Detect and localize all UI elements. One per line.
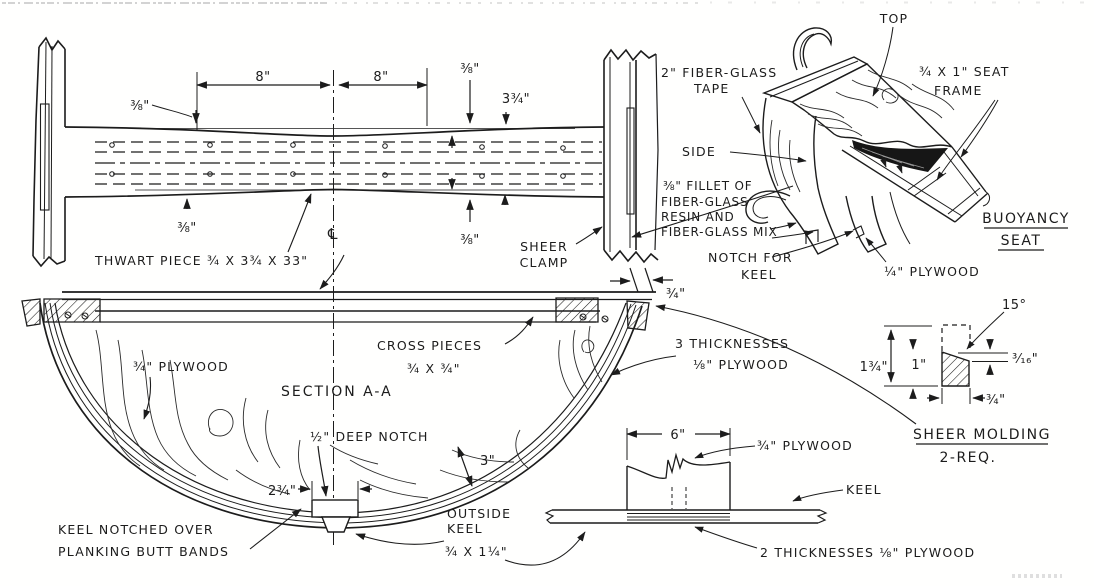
sheer-clamp-label-2: CLAMP <box>520 255 569 270</box>
dim-38-bottom-left: ⅜" <box>177 221 197 236</box>
dim-6: 6" <box>670 428 685 443</box>
plan-dimensions <box>152 68 506 545</box>
side-leader <box>730 152 806 161</box>
cross-pieces-label-1: CROSS PIECES <box>377 338 482 353</box>
thwart-leader-up <box>288 194 311 252</box>
thwart-piece-plan <box>65 127 604 197</box>
thwart-piece-label: THWART PIECE ¾ X 3¾ X 33" <box>94 253 308 268</box>
dim-34-gap-group <box>610 268 673 292</box>
deep-notch-label: ½" DEEP NOTCH <box>310 429 429 444</box>
dim-3-16: ³⁄₁₆" <box>1012 352 1038 367</box>
hull-wood-grain <box>96 326 602 498</box>
keel-thicknesses-label: 2 THICKNESSES ⅛" PLYWOOD <box>760 545 975 560</box>
dim-8-right: 8" <box>373 70 388 85</box>
thicknesses-label-1: 3 THICKNESSES <box>675 336 789 351</box>
keel-label: KEEL <box>846 482 882 497</box>
plywood-34-label: ¾" PLYWOOD <box>133 359 229 374</box>
dim-34-gap: ¾" <box>666 287 686 302</box>
plan-sheer-clamp-post <box>604 50 658 262</box>
plan-left-hull-side <box>33 38 65 266</box>
screw-holes <box>110 143 566 179</box>
drawing-canvas: 8" 8" ⅜" ⅜" 3¾" ⅜" ⅜" ℄ THWART PIECE ¾ X… <box>0 0 1094 586</box>
dim-38-top-left: ⅜" <box>130 99 150 114</box>
sheer-molding-req: 2-REQ. <box>939 450 996 466</box>
dim-1: 1" <box>911 358 926 373</box>
tape-label-2: TAPE <box>693 81 729 96</box>
keel-notched-leader <box>250 509 301 549</box>
keel-leader <box>793 490 843 501</box>
dim-38-bottom-right: ⅜" <box>460 233 480 248</box>
sheer-molding-detail <box>884 312 1008 404</box>
boat-construction-drawing: 8" 8" ⅜" ⅜" 3¾" ⅜" ⅜" ℄ THWART PIECE ¾ X… <box>0 0 1094 586</box>
sheer-clamp-leader <box>576 227 602 244</box>
buoyancy-caption-2: SEAT <box>1001 233 1042 249</box>
fillet-label-2: FIBER-GLASS <box>661 195 748 209</box>
side-label: SIDE <box>682 144 716 159</box>
outside-keel-label-1: OUTSIDE <box>447 506 511 521</box>
seat-frame-label-1: ¾ X 1" SEAT <box>919 64 1010 79</box>
keel-notched-label-1: KEEL NOTCHED OVER <box>58 522 214 537</box>
cross-pieces-leader <box>505 317 533 344</box>
quarter-plywood-label: ¼" PLYWOOD <box>884 264 980 279</box>
section-title: SECTION A-A <box>281 384 393 400</box>
keel-thicknesses-leader <box>695 527 757 548</box>
sheer-molding-caption: SHEER MOLDING <box>913 427 1051 443</box>
dim-34-molding: ¾" <box>986 393 1006 408</box>
print-artifact-top <box>2 3 1090 4</box>
outside-keel-label-3: ¾ X 1¼" <box>445 544 508 559</box>
molding-angle: 15° <box>1002 298 1027 313</box>
keel-notched-label-2: PLANKING BUTT BANDS <box>58 544 229 559</box>
fillet-label-3: RESIN AND <box>661 210 735 224</box>
keel-plywood-label: ¾" PLYWOOD <box>757 438 853 453</box>
thwart-leader-down <box>320 255 344 289</box>
dim-3-34: 3¾" <box>502 92 530 107</box>
dim-8-left: 8" <box>255 70 270 85</box>
outside-keel-label-2: KEEL <box>447 521 483 536</box>
buoyancy-caption-1: BUOYANCY <box>982 211 1070 227</box>
fillet-label-1: ⅜" FILLET OF <box>663 179 752 193</box>
thicknesses-label-2: ⅛" PLYWOOD <box>693 357 789 372</box>
dim-38-top-right: ⅜" <box>460 62 480 77</box>
seat-frame-label-2: FRAME <box>934 83 983 98</box>
tape-label-1: 2" FIBER-GLASS <box>661 65 777 80</box>
dim-1-34: 1¾" <box>860 360 888 375</box>
section-gunwale-blocks <box>22 298 649 330</box>
outside-keel-leader <box>356 534 444 544</box>
fillet-label-4: FIBER-GLASS MIX <box>661 225 778 239</box>
keel-plywood-leader <box>695 446 755 458</box>
centerline-symbol: ℄ <box>326 225 339 243</box>
top-label: TOP <box>879 11 909 26</box>
seat-frame-leader-1 <box>961 100 998 157</box>
dim-2-34: 2¾" <box>268 484 296 499</box>
hull-shell-laminations <box>40 303 642 528</box>
cross-pieces-label-2: ¾ X ¾" <box>407 361 461 376</box>
quarter-plywood-leader <box>866 238 886 262</box>
dim-3: 3" <box>480 454 495 469</box>
plywood-34-leader <box>144 377 151 419</box>
sheer-clamp-label-1: SHEER <box>520 239 568 254</box>
outside-keel-long-leader <box>505 532 585 565</box>
tape-leader <box>742 97 760 133</box>
buoyancy-seat-drawing <box>746 28 990 254</box>
notch-for-keel-label-2: KEEL <box>741 267 777 282</box>
notch-for-keel-label-1: NOTCH FOR <box>708 250 793 265</box>
